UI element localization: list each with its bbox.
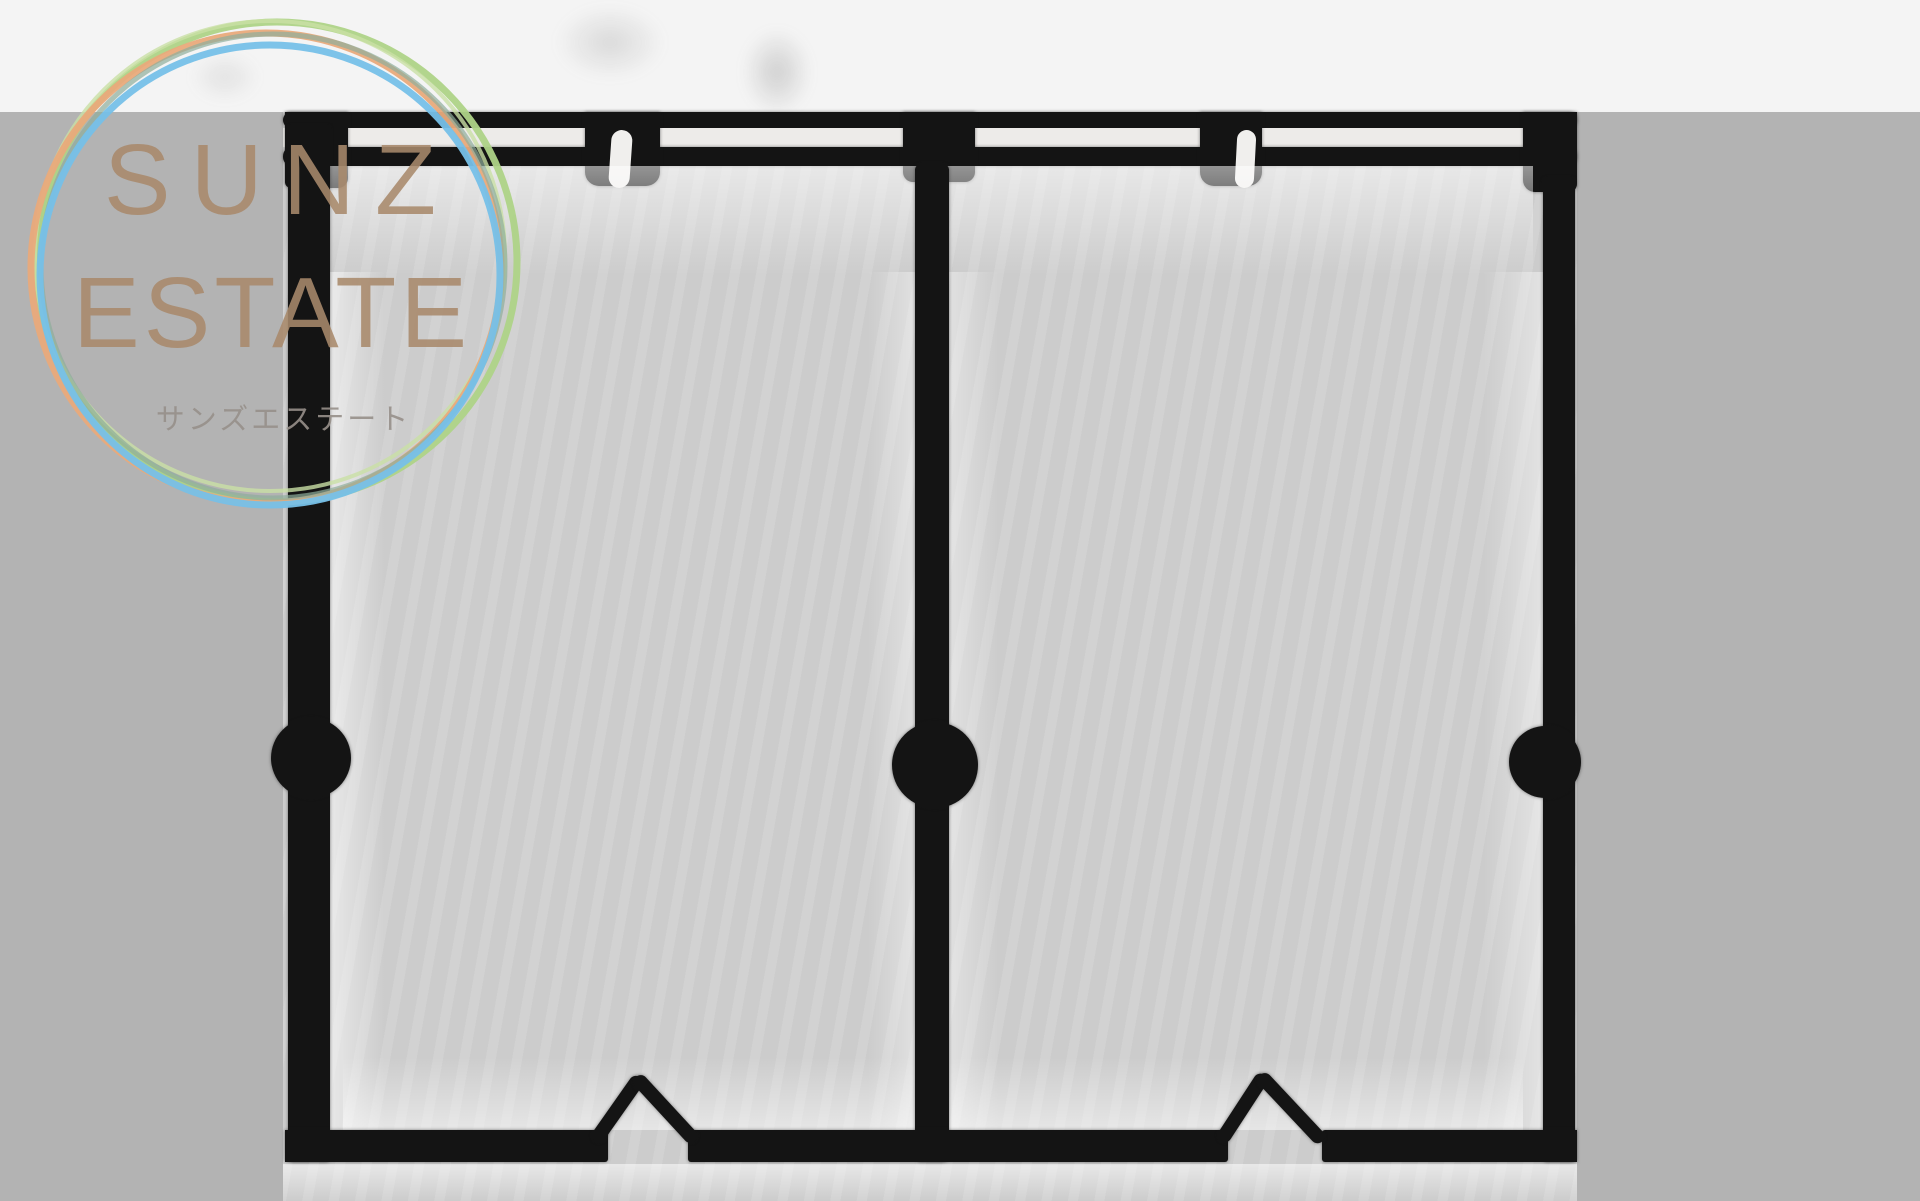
scan-halo	[1483, 272, 1543, 1132]
wall-bottom-segment	[285, 1130, 608, 1162]
column-dot-right	[1509, 726, 1581, 798]
scan-halo	[283, 1164, 1577, 1201]
wall-right	[1543, 178, 1575, 1162]
screenshot-root: SUNZ ESTATE サンズエステート	[0, 0, 1920, 1201]
scan-smudge	[190, 52, 260, 102]
scan-halo	[330, 272, 385, 1132]
wall-bottom-segment	[1322, 1130, 1577, 1162]
wall-left	[288, 126, 330, 1162]
mullion-slit	[608, 129, 633, 188]
wall-center	[915, 164, 949, 1162]
scan-smudge	[555, 5, 665, 80]
door-notch-left-leg	[631, 1072, 700, 1145]
column-dot-center	[892, 722, 978, 808]
wall-bottom-segment	[688, 1130, 1228, 1162]
scan-smudge	[742, 28, 812, 116]
window-mullion-right	[1200, 112, 1262, 186]
floorplan-paper	[283, 112, 1577, 1201]
scan-halo	[949, 272, 999, 1132]
scan-halo	[868, 272, 915, 1132]
window-mullion-left	[585, 112, 660, 186]
column-dot-left	[271, 718, 351, 798]
door-notch-right-leg	[1255, 1070, 1327, 1146]
mullion-slit	[1234, 130, 1256, 189]
top-white-strip	[0, 0, 1920, 112]
